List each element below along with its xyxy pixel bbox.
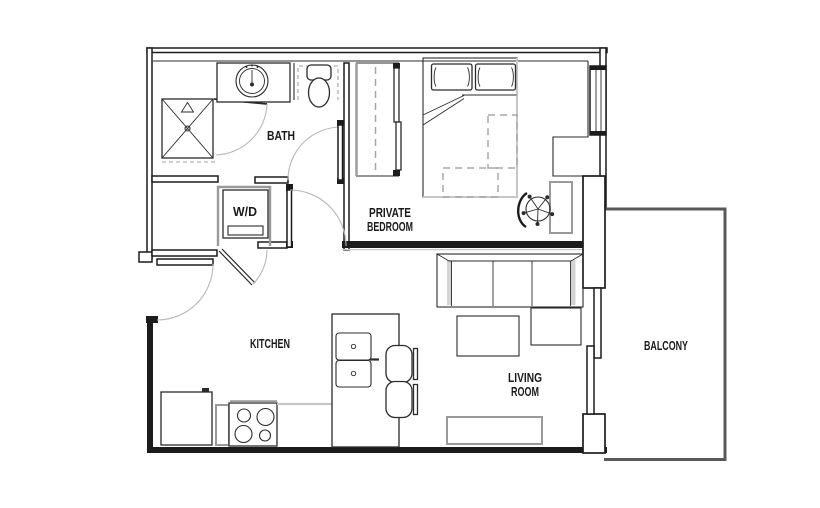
pillow bbox=[476, 64, 516, 90]
counter bbox=[216, 405, 229, 445]
bath-door bbox=[288, 125, 343, 180]
sofa bbox=[437, 254, 583, 307]
pillow bbox=[432, 64, 473, 90]
wall-pillar-lower bbox=[583, 414, 605, 453]
balcony-wall bbox=[604, 209, 725, 460]
vanity-sink bbox=[217, 63, 294, 102]
floor-plan: BATH W/D PRIVATE BEDROOM KITCHEN LIVING … bbox=[0, 0, 820, 508]
entry-frame-stub bbox=[139, 252, 152, 262]
entry-door bbox=[157, 259, 213, 320]
bedroom-door-leaf bbox=[287, 190, 292, 247]
room-label-bath: BATH bbox=[267, 129, 295, 143]
desk bbox=[550, 182, 572, 233]
floor-plan-drawing: BATH W/D PRIVATE BEDROOM KITCHEN LIVING … bbox=[0, 0, 820, 508]
balcony bbox=[587, 209, 725, 460]
entry-door-leaf bbox=[157, 259, 213, 265]
wall-left-lower bbox=[147, 316, 153, 453]
room-label-living-line2: ROOM bbox=[511, 385, 539, 399]
window-stub-bottom bbox=[590, 131, 606, 135]
room-label-kitchen: KITCHEN bbox=[250, 337, 290, 351]
shower-door bbox=[214, 99, 267, 155]
window-frame bbox=[590, 66, 606, 135]
room-label-bedroom-line2: BEDROOM bbox=[367, 220, 413, 234]
wall-left-upper bbox=[147, 48, 152, 258]
room-label-wd: W/D bbox=[233, 205, 257, 219]
window-stub-top bbox=[590, 66, 606, 70]
closet-sliding-doors bbox=[356, 63, 401, 176]
room-labels: BATH W/D PRIVATE BEDROOM KITCHEN LIVING … bbox=[233, 129, 688, 399]
tv-stand bbox=[447, 417, 542, 444]
wall-bedroom-south bbox=[342, 241, 585, 248]
wall-pillar-upper bbox=[583, 176, 605, 288]
sliding-door-panel-2 bbox=[587, 346, 594, 414]
room-label-living-line1: LIVING bbox=[508, 371, 542, 385]
wall-top bbox=[147, 48, 607, 53]
bedroom-door-swing bbox=[290, 190, 346, 246]
bedroom-window bbox=[590, 66, 606, 135]
toilet bbox=[298, 65, 338, 107]
wall-entry bbox=[152, 250, 217, 256]
desk-chair bbox=[518, 193, 554, 227]
laundry-closet bbox=[218, 187, 270, 285]
entry-door-swing bbox=[157, 264, 213, 320]
wall-bath-east bbox=[344, 63, 349, 250]
bar-stools bbox=[386, 346, 418, 418]
wall-bath-south-east bbox=[255, 177, 288, 183]
living-room bbox=[437, 254, 583, 444]
bed bbox=[423, 58, 517, 197]
wall-bath-south-west bbox=[152, 176, 218, 182]
bedroom-door bbox=[287, 190, 346, 247]
wall-hall-south bbox=[258, 242, 287, 248]
room-label-bedroom-line1: PRIVATE bbox=[369, 206, 411, 220]
under-bed-storage bbox=[488, 115, 517, 168]
wall-bottom bbox=[147, 447, 607, 453]
kitchen bbox=[161, 314, 418, 447]
refrigerator bbox=[161, 388, 212, 445]
bath-room bbox=[162, 63, 343, 180]
laundry-door bbox=[219, 249, 267, 285]
shower bbox=[162, 99, 215, 162]
sliding-door-panel-1 bbox=[594, 288, 601, 358]
side-table bbox=[531, 308, 581, 345]
under-bed-storage bbox=[443, 168, 498, 197]
room-label-balcony: BALCONY bbox=[644, 339, 688, 353]
stove bbox=[229, 402, 277, 447]
coffee-table bbox=[457, 316, 519, 356]
